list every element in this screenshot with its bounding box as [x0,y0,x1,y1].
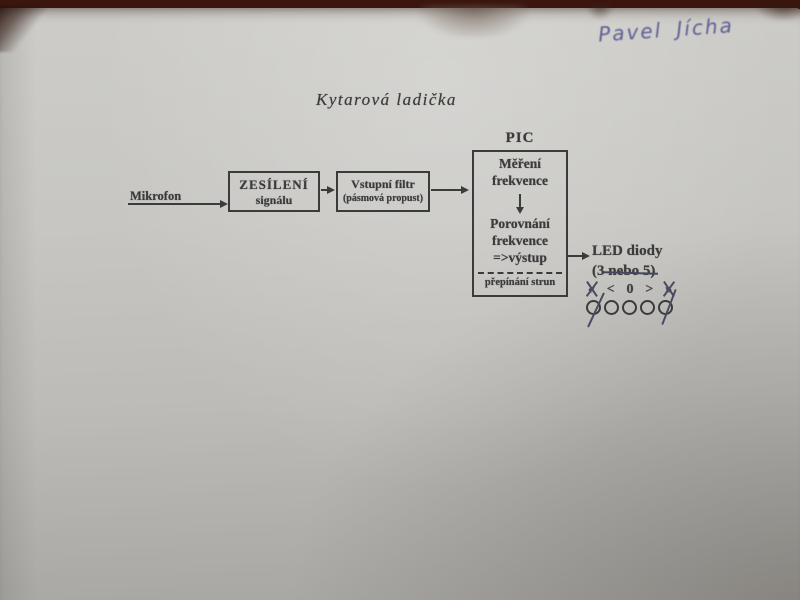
input-filter-box: Vstupní filtr (pásmová propust) [336,171,430,212]
photo-of-paper: Pavel Jícha Kytarová ladička Mikrofon ZE… [0,0,800,600]
led-circle-2 [604,300,619,315]
amplifier-box-line1: ZESÍLENÍ [230,176,318,193]
led-circle-3 [622,300,637,315]
led-count-struck-text: nebo 5) [608,261,655,281]
pic-label: PIC [472,130,568,147]
arrowhead-icon [220,200,228,208]
filter-to-pic-line [431,189,462,191]
microphone-arrow-line [128,203,222,205]
pic-compare-step: Porovnání frekvence =>výstup [474,215,566,266]
led-label-line1: LED diody [592,241,662,261]
symbol-in-tune: 0 [626,282,633,298]
led-output-label: LED diody (3 nebo 5) [592,241,662,281]
pic-measure-line1: Měření [474,156,566,173]
led-circle-4 [640,300,655,315]
dashed-divider [478,272,562,274]
led-label-line2: (3 nebo 5) [592,261,662,281]
pic-to-led-line [568,255,583,257]
arrowhead-icon [461,186,469,194]
pic-compare-line1: Porovnání [474,215,566,232]
pic-measure-line2: frekvence [474,173,566,190]
pic-box: Měření frekvence Porovnání frekvence =>v… [472,150,568,297]
pic-compare-line3: =>výstup [474,249,566,266]
arrowhead-icon [327,186,335,194]
microphone-label: Mikrofon [130,189,181,204]
filter-box-line2: (pásmová propust) [338,192,428,206]
symbol-far-sharp-crossed: » [665,282,672,298]
amplifier-box: ZESÍLENÍ signálu [228,171,320,212]
pic-footer-label: přepínání strun [474,276,566,290]
arrowhead-icon [582,252,590,260]
symbol-sharp: > [645,282,653,298]
symbol-flat: < [607,282,615,298]
block-diagram: Kytarová ladička Mikrofon ZESÍLENÍ signá… [0,0,800,600]
diagram-title: Kytarová ladička [316,90,457,110]
filter-box-line1: Vstupní filtr [338,177,428,192]
amplifier-box-line2: signálu [230,193,318,208]
symbol-far-flat-crossed: « [588,282,595,298]
pic-measure-step: Měření frekvence [474,156,566,189]
pic-compare-line2: frekvence [474,232,566,249]
